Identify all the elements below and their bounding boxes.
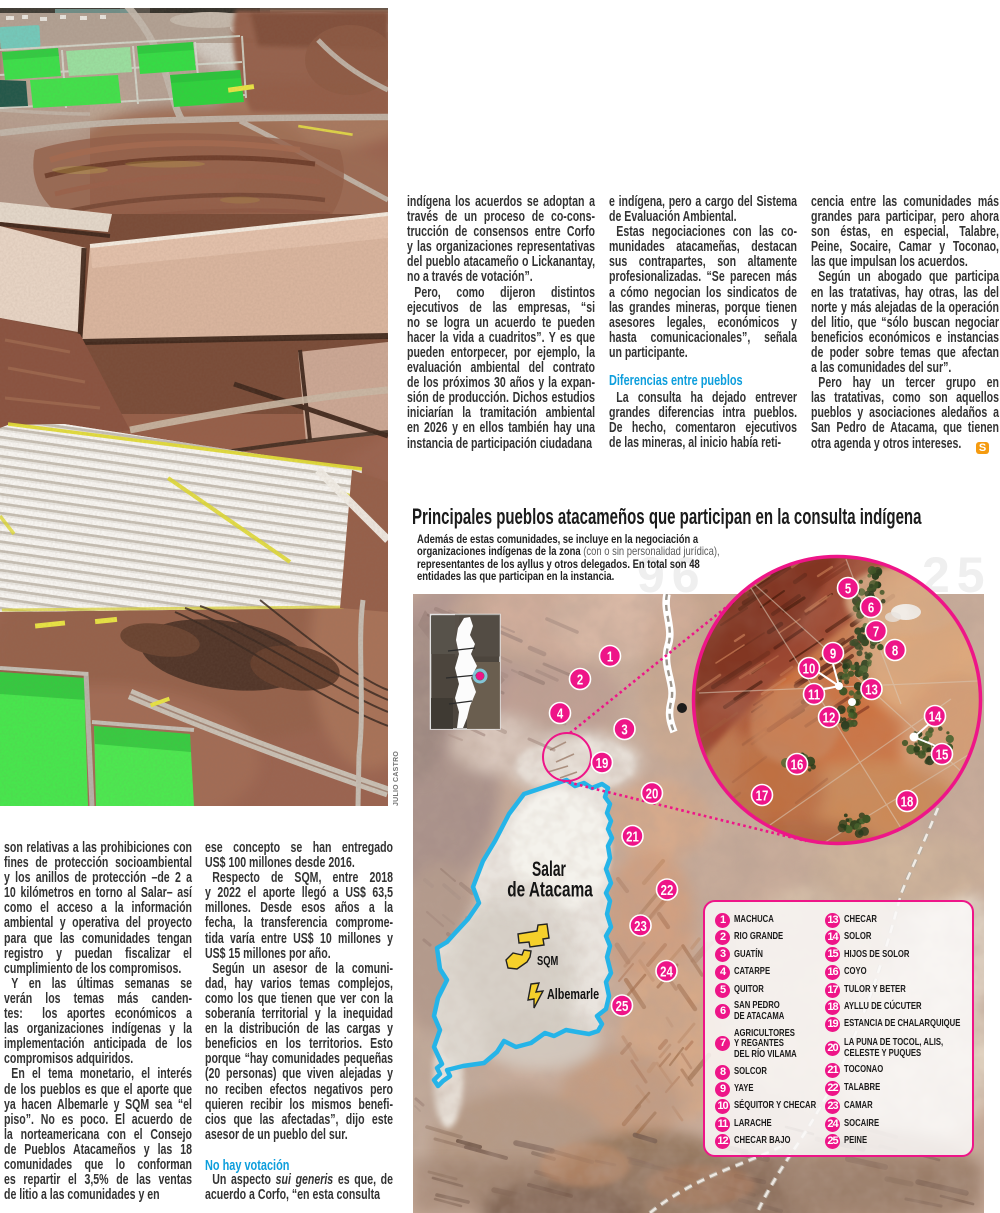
svg-text:21: 21	[626, 828, 639, 845]
svg-text:3: 3	[621, 721, 627, 738]
svg-text:15: 15	[936, 746, 949, 763]
svg-text:2: 2	[577, 671, 583, 688]
svg-text:5: 5	[845, 580, 852, 597]
svg-text:7: 7	[873, 623, 879, 640]
svg-text:18: 18	[901, 793, 914, 810]
svg-text:16: 16	[791, 756, 804, 773]
svg-text:Albemarle: Albemarle	[547, 985, 599, 1002]
svg-text:8: 8	[892, 642, 898, 659]
svg-text:9: 9	[830, 645, 836, 662]
svg-text:11: 11	[808, 686, 821, 703]
svg-text:12: 12	[823, 709, 836, 726]
svg-text:13: 13	[865, 681, 878, 698]
svg-text:1: 1	[607, 648, 614, 665]
svg-text:23: 23	[634, 917, 647, 934]
svg-text:20: 20	[646, 785, 659, 802]
svg-text:22: 22	[661, 881, 674, 898]
svg-text:17: 17	[756, 787, 769, 804]
svg-text:SQM: SQM	[537, 955, 558, 969]
svg-text:14: 14	[929, 708, 942, 725]
svg-text:de Atacama: de Atacama	[507, 877, 593, 901]
svg-text:24: 24	[660, 963, 673, 980]
svg-text:4: 4	[557, 705, 564, 722]
svg-text:6: 6	[868, 599, 874, 616]
svg-text:10: 10	[803, 660, 816, 677]
svg-text:25: 25	[616, 997, 629, 1014]
svg-text:19: 19	[596, 754, 609, 771]
